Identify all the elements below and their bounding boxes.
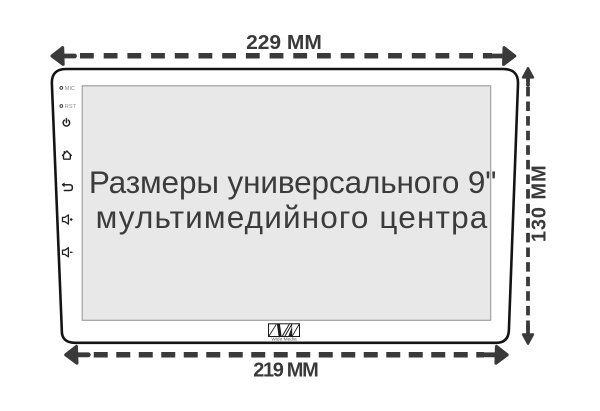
svg-text:130 ММ: 130 ММ: [529, 164, 551, 242]
svg-text:219 ММ: 219 ММ: [253, 360, 318, 382]
svg-text:Wide Media: Wide Media: [271, 337, 297, 343]
svg-text:MIC: MIC: [65, 86, 75, 92]
svg-text:RST: RST: [65, 104, 77, 110]
svg-text:Размеры универсального 9": Размеры универсального 9": [89, 164, 497, 200]
svg-text:229 ММ: 229 ММ: [246, 31, 322, 53]
svg-text:мультимедийного центра: мультимедийного центра: [96, 199, 489, 235]
